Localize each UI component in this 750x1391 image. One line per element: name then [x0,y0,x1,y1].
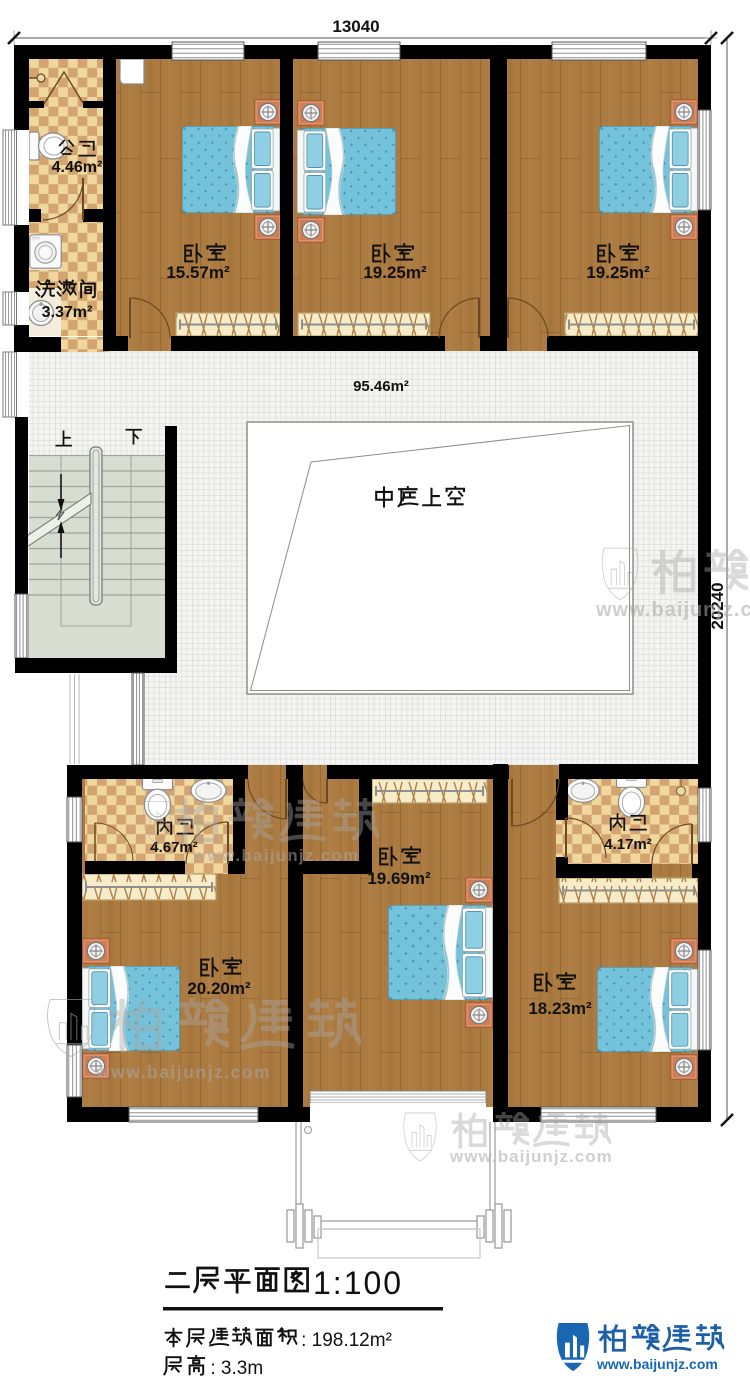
svg-text:19.25m²: 19.25m² [586,263,650,282]
svg-text:95.46m²: 95.46m² [353,378,409,395]
svg-text:13040: 13040 [332,17,379,36]
svg-text:15.57m²: 15.57m² [166,263,230,282]
svg-text:4.67m²: 4.67m² [150,839,198,856]
svg-text:: 198.12m²: : 198.12m² [301,1330,392,1351]
svg-text:: 3.3m: : 3.3m [210,1358,263,1379]
svg-text:www.baijunjz.com: www.baijunjz.com [192,847,359,865]
svg-text:www.baijunjz.com: www.baijunjz.com [596,1356,718,1372]
svg-text:4.46m²: 4.46m² [52,159,103,176]
svg-text:www.baijunjz.com: www.baijunjz.com [449,1147,613,1166]
svg-text:19.25m²: 19.25m² [363,263,427,282]
svg-text:4.17m²: 4.17m² [604,836,652,853]
svg-text:3.37m²: 3.37m² [42,304,93,321]
svg-text:www.baijunjz.com: www.baijunjz.com [595,599,750,621]
svg-text:www.baijunjz.com: www.baijunjz.com [95,1062,271,1082]
svg-text:18.23m²: 18.23m² [528,999,592,1018]
svg-text:1:100: 1:100 [313,1265,403,1301]
svg-text:19.69m²: 19.69m² [367,869,431,888]
svg-text:20.20m²: 20.20m² [187,979,251,998]
